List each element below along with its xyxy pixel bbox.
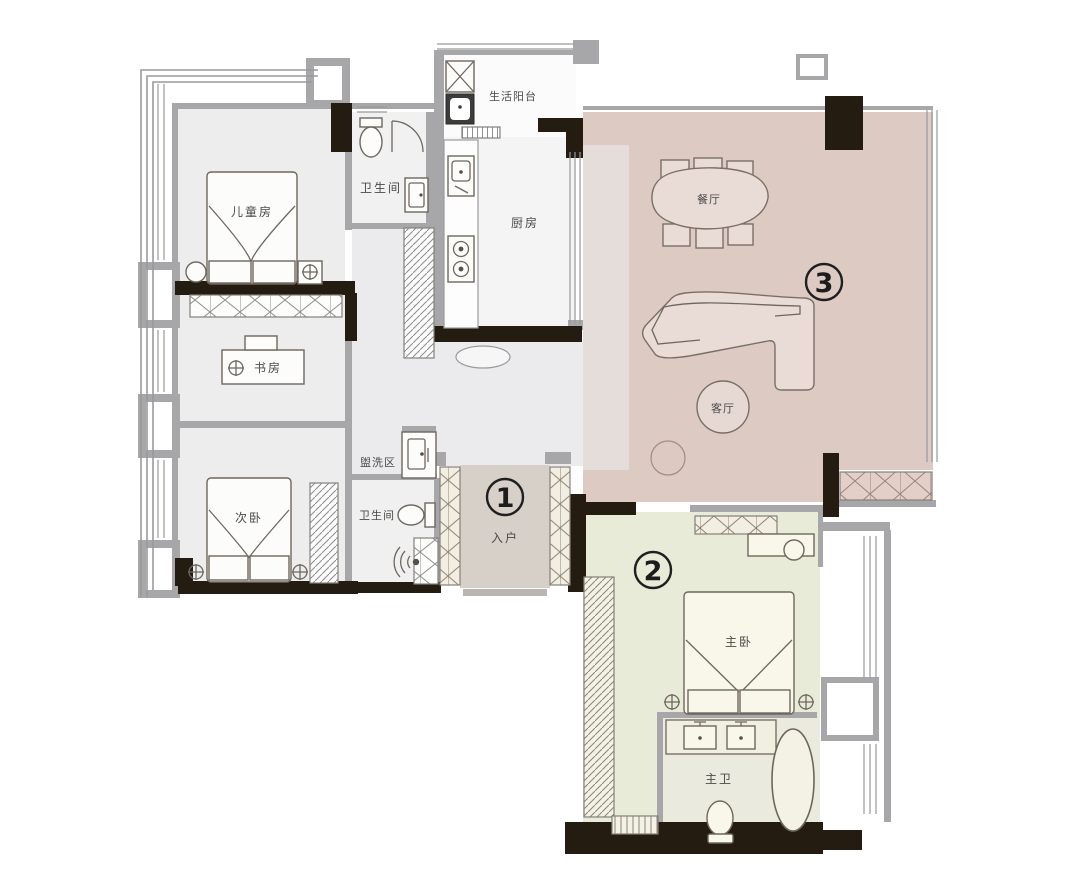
kitchen-pass-sill [462,127,500,138]
second-bedroom-label: 次卧 [235,511,263,525]
children-nightstand-left [186,262,206,282]
pillar-top-left [306,58,350,108]
dining-label: 餐厅 [697,192,721,206]
wall-master-top [690,505,823,512]
wall-black-master-topleft [580,502,636,515]
kitchen-stove [448,236,474,282]
wall-wash-stub [402,426,436,432]
wall-kitchen-left [434,50,444,338]
pillar-left-3 [138,540,180,598]
master-dresser [748,534,814,560]
master-shoe-rack [612,816,658,834]
pillar-left-2 [138,394,180,458]
wall-living-bay-bottom [838,500,936,507]
children-bed [207,172,297,284]
marker-entry-number: 1 [496,483,515,514]
window-balcony-top [437,44,573,49]
floor-plan-svg: 儿童房 卫生间 生活阳台 厨房 餐厅 客厅 书房 次卧 盥洗区 卫生间 入户 主… [0,0,1080,889]
living-floor-light-strip [583,145,629,470]
entry-cabinet-right [550,467,570,585]
entry-cabinet-left [440,467,460,585]
bath-lower-toilet [398,503,435,527]
bath-top-label: 卫生间 [360,181,402,195]
hall-cabinet-strip [404,228,434,358]
pillar-top-right-small [798,56,826,78]
wall-bay-top-step [820,522,890,531]
wall-bath-top [352,103,434,109]
wash-area-cabinet [402,432,436,478]
children-nightstand-right [298,261,322,284]
children-room-label: 儿童房 [231,204,273,219]
kitchen-label: 厨房 [511,215,539,230]
bath-top-sink [405,178,428,212]
kitchen-sink [448,156,474,196]
master-wardrobe [584,577,614,817]
master-bath-label: 主卫 [705,772,733,786]
corridor-floor [352,228,404,478]
wall-black-hall-stub [345,293,357,341]
bath-lower-label: 卫生间 [359,508,395,522]
wall-black-children-top [331,103,352,152]
wall-bay-right-frame [884,530,891,822]
second-bedroom-wardrobe [310,483,338,583]
master-bedroom-label: 主卧 [725,635,753,649]
service-balcony-label: 生活阳台 [489,89,537,103]
master-bed [684,592,794,714]
wall-entry-bottom-step [463,589,547,596]
pillar-black-top-right [825,96,863,150]
marker-living-number: 3 [815,268,834,299]
bath-top-toilet [360,118,382,157]
living-bay-cabinet [840,472,932,500]
balcony-sink [446,94,474,124]
pillar-top-mid [573,40,599,64]
wall-black-balcony-corner-h [538,118,583,132]
wall-master-right-top [818,512,823,567]
pillar-bay-mid [824,680,876,738]
master-bay-floor [820,532,884,818]
wall-left-block [172,103,178,595]
second-bed [207,478,291,582]
floor-plan-canvas: 儿童房 卫生间 生活阳台 厨房 餐厅 客厅 书房 次卧 盥洗区 卫生间 入户 主… [0,0,1080,889]
pillar-left-1 [138,262,180,328]
wall-living-top [583,106,933,110]
study-label: 书房 [254,360,282,375]
hall-rug [456,346,510,368]
bathtub [772,729,814,831]
living-label: 客厅 [711,401,735,415]
floors [175,55,933,826]
wash-area-label: 盥洗区 [360,456,396,469]
entry-label: 入户 [491,530,519,545]
master-bath-toilet [707,801,733,843]
master-top-cabinet [695,516,777,534]
washer-icon [446,61,474,92]
wall-black-living-corner [823,453,839,517]
living-plant [651,441,685,475]
wall-entry-stub-right [545,452,571,464]
marker-master-number: 2 [644,556,663,587]
children-wardrobe-strip [190,295,342,317]
wall-study-secondbr [175,421,345,428]
wall-black-bay-bottom [820,830,862,850]
master-bath-counter [666,720,776,754]
wall-balcony-top [434,50,576,55]
